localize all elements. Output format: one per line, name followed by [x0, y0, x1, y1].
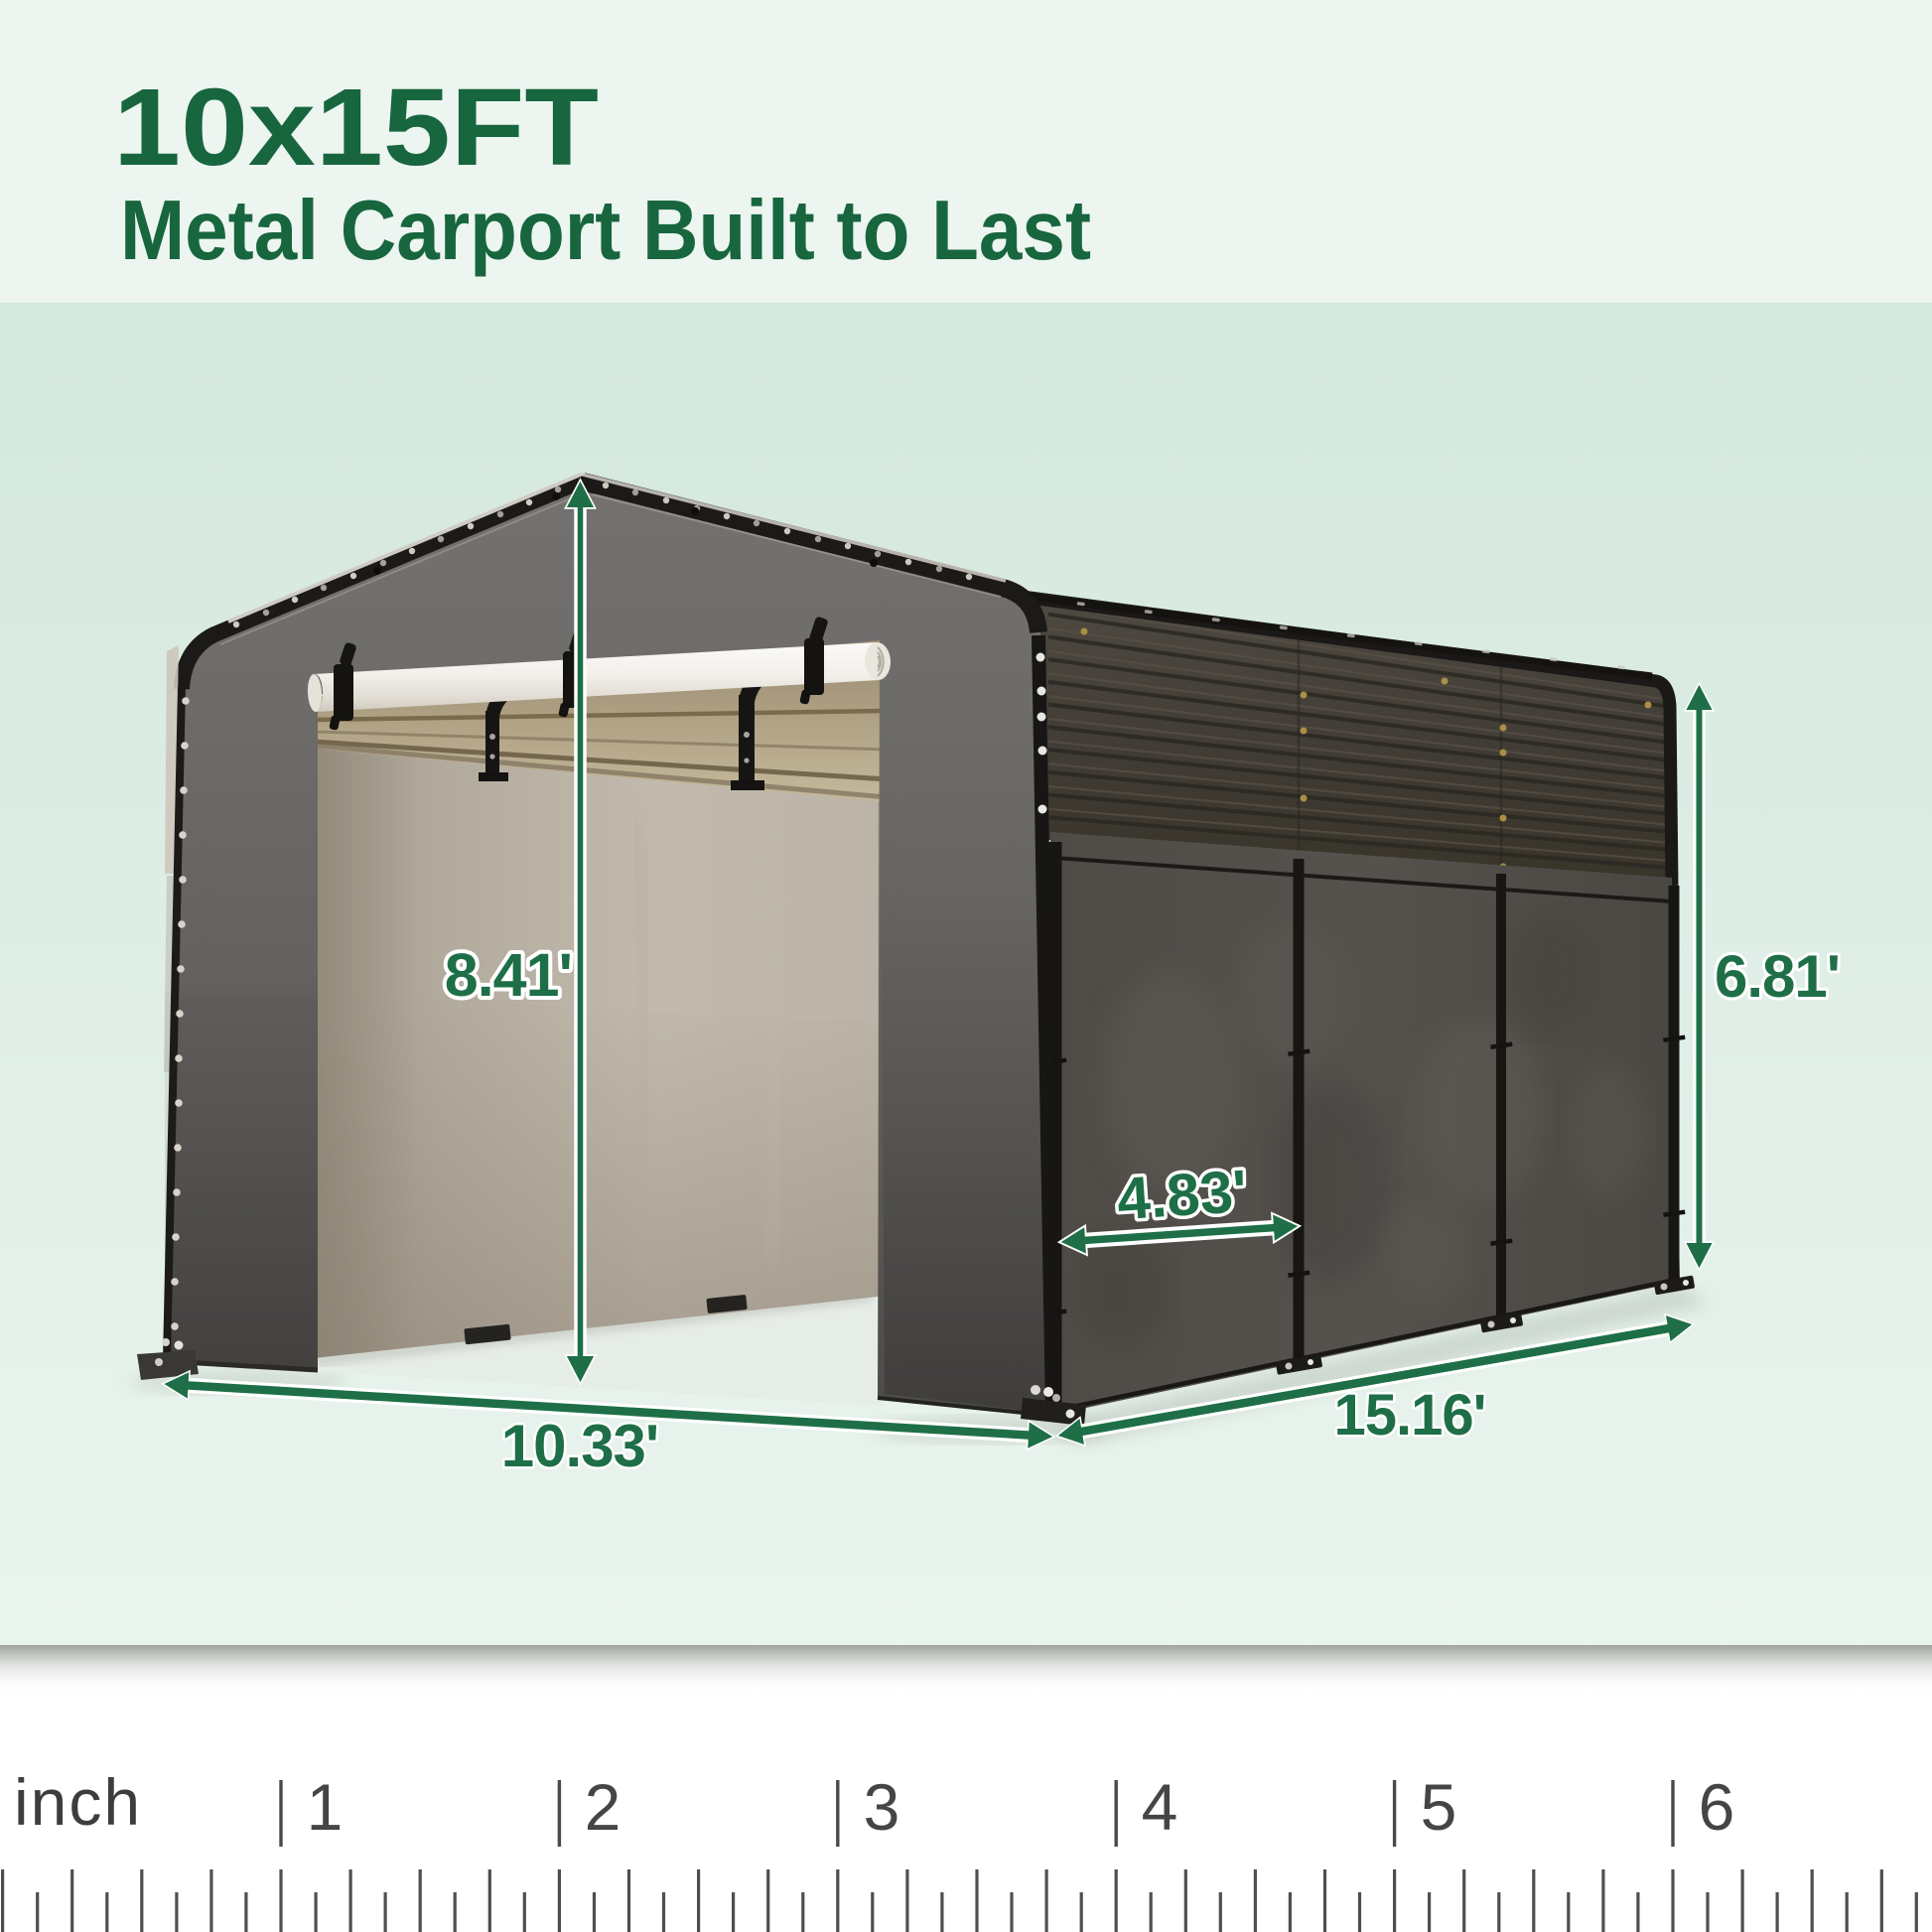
svg-text:2: 2 [585, 1770, 621, 1844]
svg-text:4.83': 4.83' [1115, 1158, 1249, 1233]
svg-text:10x15FT: 10x15FT [113, 67, 599, 189]
svg-text:10.33': 10.33' [501, 1413, 658, 1479]
svg-text:1: 1 [307, 1770, 344, 1844]
svg-text:6.81': 6.81' [1715, 943, 1840, 1010]
svg-text:6: 6 [1699, 1770, 1735, 1844]
svg-text:Metal Carport Built to Last: Metal Carport Built to Last [120, 184, 1091, 278]
svg-text:inch: inch [14, 1765, 142, 1839]
svg-text:8.41': 8.41' [445, 941, 572, 1009]
svg-text:4: 4 [1142, 1770, 1178, 1844]
svg-text:15.16': 15.16' [1334, 1383, 1486, 1448]
svg-text:5: 5 [1421, 1770, 1457, 1844]
svg-text:3: 3 [864, 1770, 900, 1844]
